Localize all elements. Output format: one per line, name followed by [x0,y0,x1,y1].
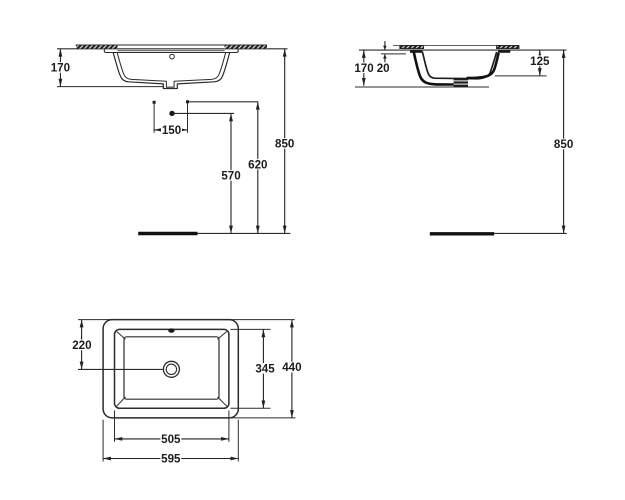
svg-text:440: 440 [282,361,301,374]
svg-text:505: 505 [161,433,181,446]
svg-text:850: 850 [275,138,294,151]
svg-text:570: 570 [221,170,240,183]
svg-text:220: 220 [72,339,91,352]
svg-text:170: 170 [354,62,373,75]
svg-text:595: 595 [161,453,181,466]
svg-text:150: 150 [162,124,181,137]
svg-text:170: 170 [51,62,70,75]
svg-text:620: 620 [248,158,267,171]
svg-text:125: 125 [530,55,550,68]
svg-text:850: 850 [554,138,573,151]
svg-text:20: 20 [377,62,390,75]
svg-text:345: 345 [255,362,275,375]
